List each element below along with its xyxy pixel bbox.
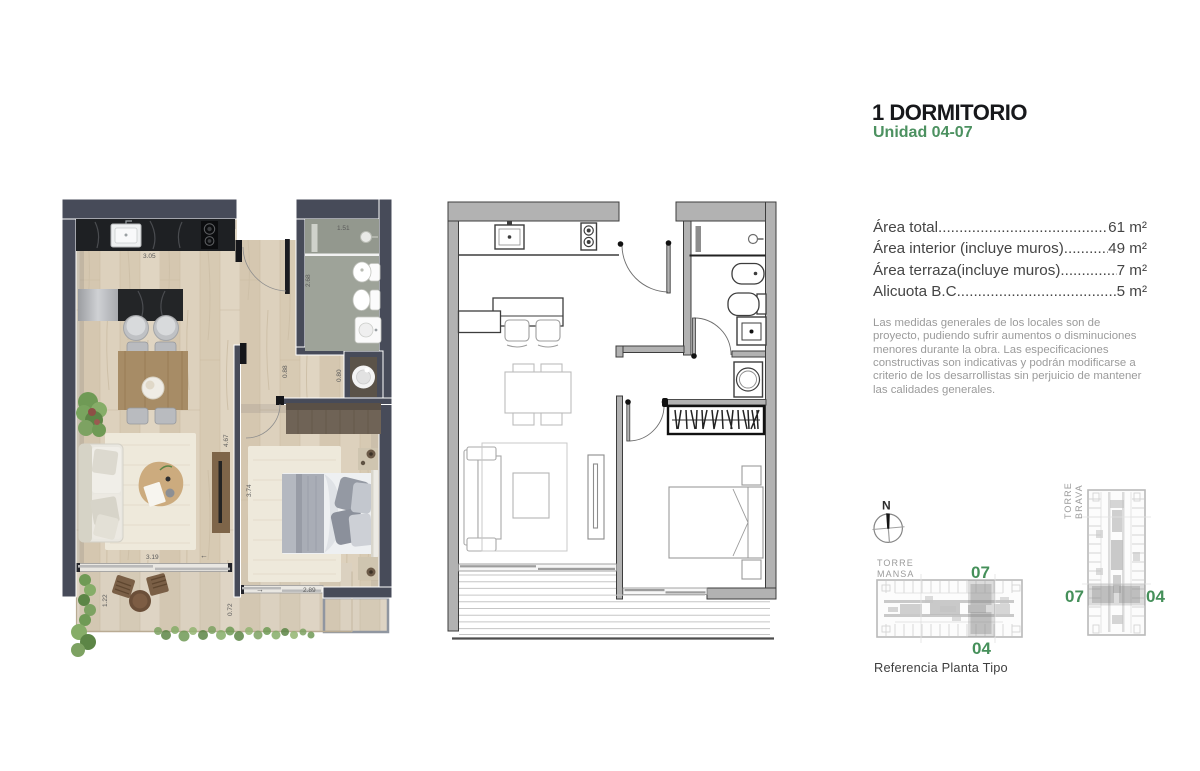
svg-text:3.05: 3.05 — [143, 253, 156, 260]
svg-text:0.72: 0.72 — [227, 603, 234, 616]
svg-text:←: ← — [200, 551, 208, 560]
svg-text:N: N — [882, 499, 891, 513]
svg-text:1.22: 1.22 — [102, 594, 109, 607]
svg-text:0.88: 0.88 — [282, 365, 289, 378]
svg-text:0.80: 0.80 — [336, 369, 343, 382]
svg-text:1.51: 1.51 — [337, 225, 350, 232]
svg-text:4.67: 4.67 — [223, 434, 230, 447]
svg-text:3.19: 3.19 — [146, 554, 159, 561]
svg-text:3.74: 3.74 — [246, 484, 253, 497]
svg-text:→: → — [256, 585, 264, 594]
svg-text:2.89: 2.89 — [303, 587, 316, 594]
svg-text:2.68: 2.68 — [305, 274, 312, 287]
